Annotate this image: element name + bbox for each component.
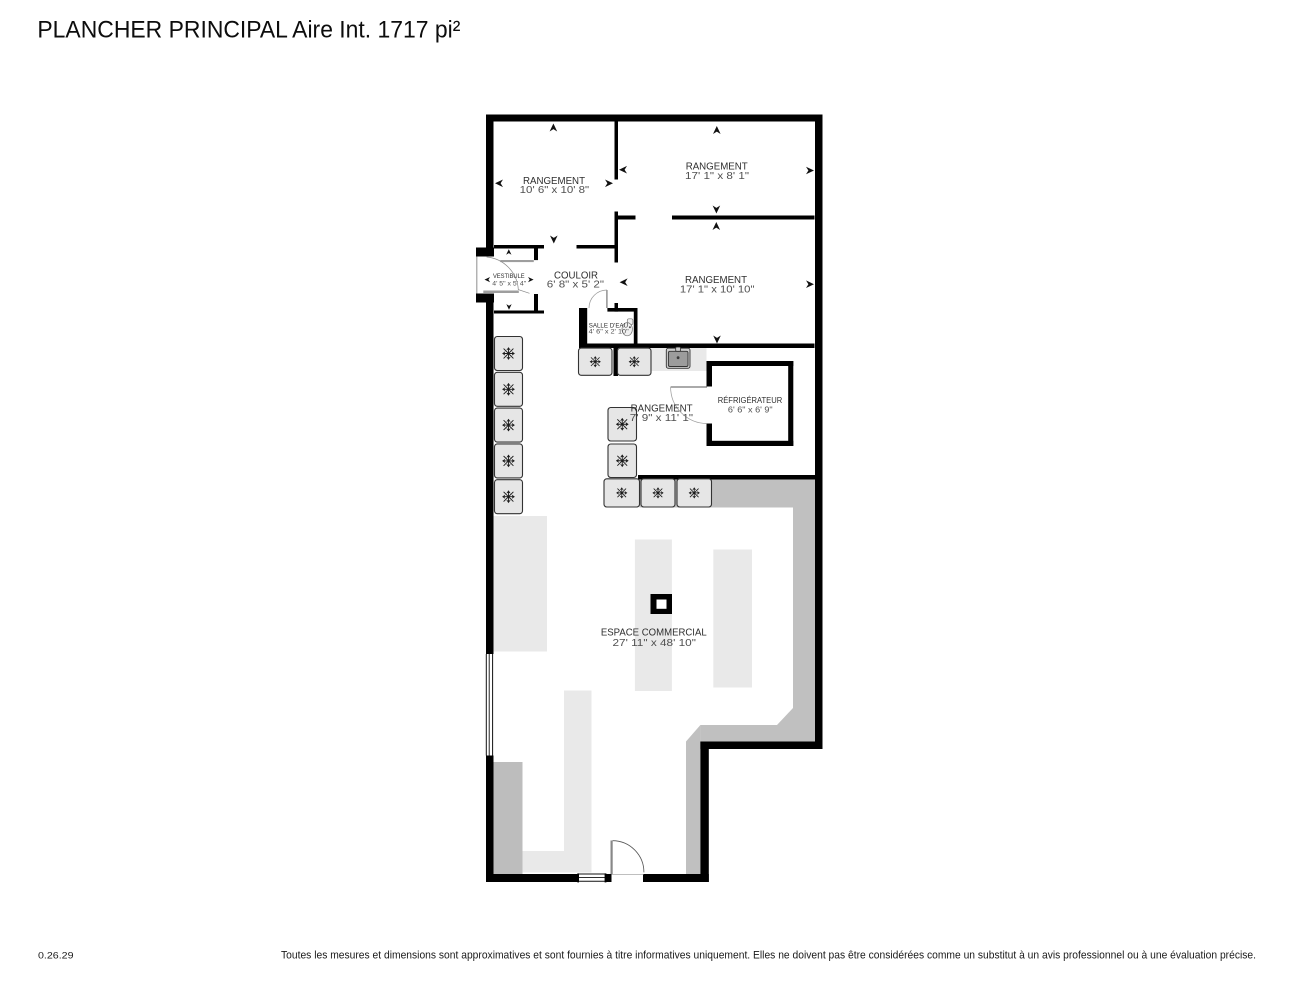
svg-text:17' 1" x 10' 10": 17' 1" x 10' 10"	[680, 284, 755, 296]
svg-text:10' 6" x 10' 8": 10' 6" x 10' 8"	[520, 184, 590, 196]
svg-text:17' 1" x 8' 1": 17' 1" x 8' 1"	[685, 170, 749, 182]
svg-text:PLANCHER PRINCIPAL Aire Int. 1: PLANCHER PRINCIPAL Aire Int. 1717 pi²	[37, 17, 460, 44]
svg-text:VESTIBULE: VESTIBULE	[493, 273, 525, 280]
svg-text:6' 8" x 5' 2": 6' 8" x 5' 2"	[547, 279, 604, 291]
svg-text:27' 11" x 48' 10": 27' 11" x 48' 10"	[613, 637, 697, 649]
svg-text:RÉFRIGÉRATEUR: RÉFRIGÉRATEUR	[718, 395, 783, 405]
svg-text:Toutes les mesures et dimensio: Toutes les mesures et dimensions sont ap…	[281, 950, 1256, 962]
svg-text:7' 9" x 11' 1": 7' 9" x 11' 1"	[630, 412, 693, 424]
svg-text:4' 5" x 5' 4": 4' 5" x 5' 4"	[492, 280, 526, 287]
svg-text:0.26.29: 0.26.29	[38, 951, 74, 962]
svg-text:6' 6" x 6' 9": 6' 6" x 6' 9"	[728, 405, 773, 415]
svg-text:4' 6" x 2' 10": 4' 6" x 2' 10"	[589, 329, 629, 336]
